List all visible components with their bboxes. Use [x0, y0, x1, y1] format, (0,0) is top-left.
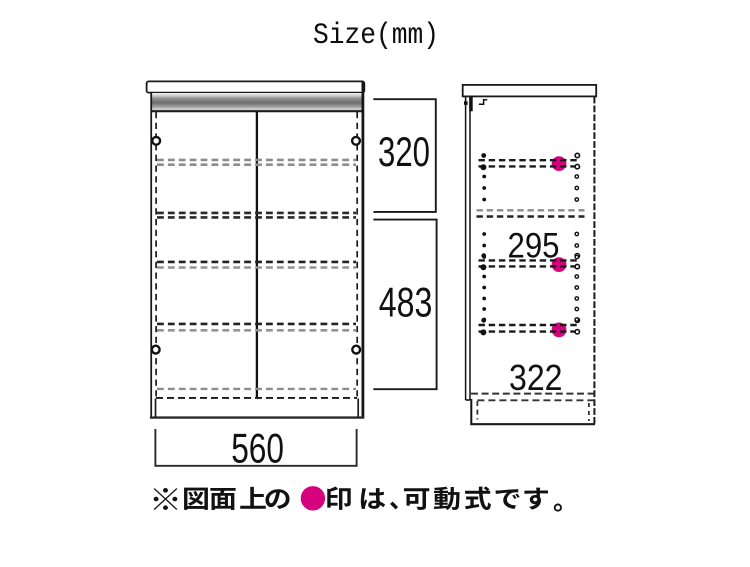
svg-text:320: 320	[378, 129, 430, 175]
svg-text:483: 483	[379, 279, 433, 325]
svg-text:295: 295	[508, 225, 560, 265]
svg-text:322: 322	[509, 357, 563, 398]
svg-text:Size(mm): Size(mm)	[313, 19, 439, 53]
svg-text:560: 560	[231, 425, 284, 471]
